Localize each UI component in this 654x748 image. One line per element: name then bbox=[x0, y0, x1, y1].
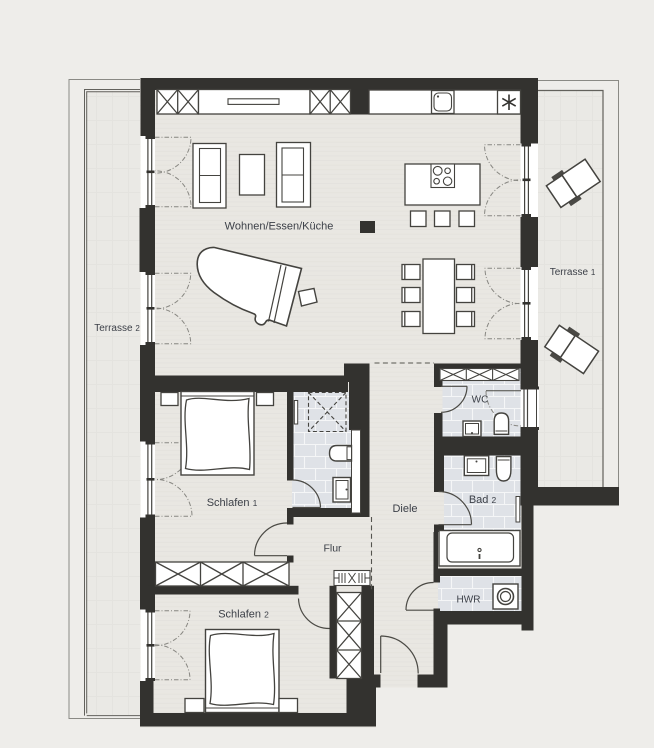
svg-text:Terrasse 1: Terrasse 1 bbox=[550, 267, 596, 278]
svg-text:Diele: Diele bbox=[392, 503, 417, 515]
svg-text:Schlafen 2: Schlafen 2 bbox=[218, 609, 269, 621]
svg-text:HWR: HWR bbox=[457, 595, 481, 606]
svg-text:WC: WC bbox=[472, 395, 489, 406]
svg-text:Schlafen 1: Schlafen 1 bbox=[207, 497, 258, 509]
svg-text:Flur: Flur bbox=[323, 543, 342, 555]
svg-text:Wohnen/Essen/Küche: Wohnen/Essen/Küche bbox=[225, 221, 334, 233]
svg-text:Bad 2: Bad 2 bbox=[469, 494, 497, 506]
svg-text:Terrasse 2: Terrasse 2 bbox=[94, 323, 140, 334]
